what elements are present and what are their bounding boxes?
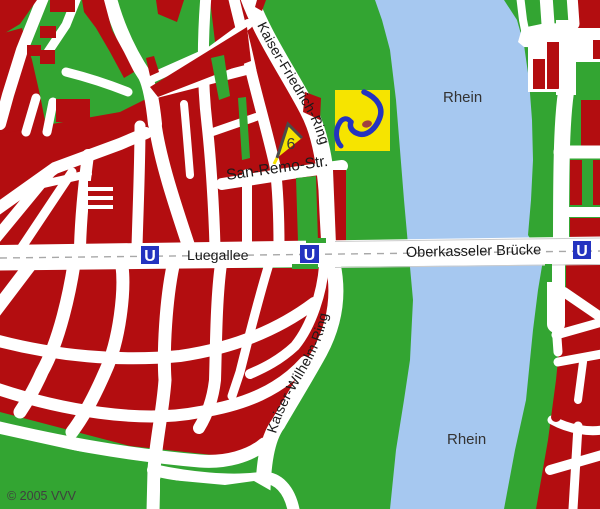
- svg-text:U: U: [144, 248, 156, 265]
- svg-text:6: 6: [287, 136, 296, 153]
- svg-text:Rhein: Rhein: [443, 89, 482, 106]
- svg-text:Oberkasseler Brücke: Oberkasseler Brücke: [406, 242, 542, 261]
- svg-text:U: U: [576, 243, 588, 260]
- svg-text:© 2005 VVV: © 2005 VVV: [7, 489, 77, 503]
- svg-text:Rhein: Rhein: [447, 431, 486, 448]
- svg-text:U: U: [304, 247, 316, 264]
- svg-text:Luegallee: Luegallee: [187, 248, 249, 264]
